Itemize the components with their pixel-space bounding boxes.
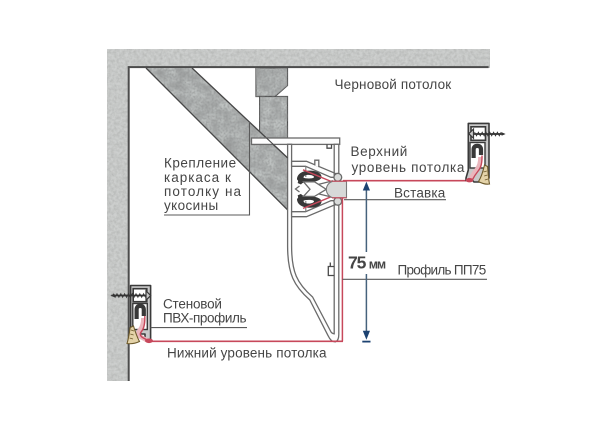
svg-text:ПВХ-профиль: ПВХ-профиль — [163, 311, 246, 326]
svg-text:уровень потолка: уровень потолка — [352, 160, 466, 175]
svg-text:Профиль ПП75: Профиль ПП75 — [398, 263, 486, 278]
svg-text:потолку на: потолку на — [164, 184, 242, 199]
svg-text:Черновой потолок: Черновой потолок — [335, 77, 452, 92]
svg-text:Вставка: Вставка — [394, 185, 446, 200]
svg-text:Стеновой: Стеновой — [163, 296, 222, 311]
svg-text:Крепление: Крепление — [164, 156, 237, 171]
svg-text:укосины: укосины — [164, 198, 219, 213]
svg-text:мм: мм — [369, 258, 386, 272]
svg-text:Верхний: Верхний — [351, 144, 408, 159]
svg-text:каркаса к: каркаса к — [164, 170, 232, 185]
svg-text:Нижний уровень потолка: Нижний уровень потолка — [167, 346, 327, 361]
svg-text:75: 75 — [348, 253, 367, 273]
